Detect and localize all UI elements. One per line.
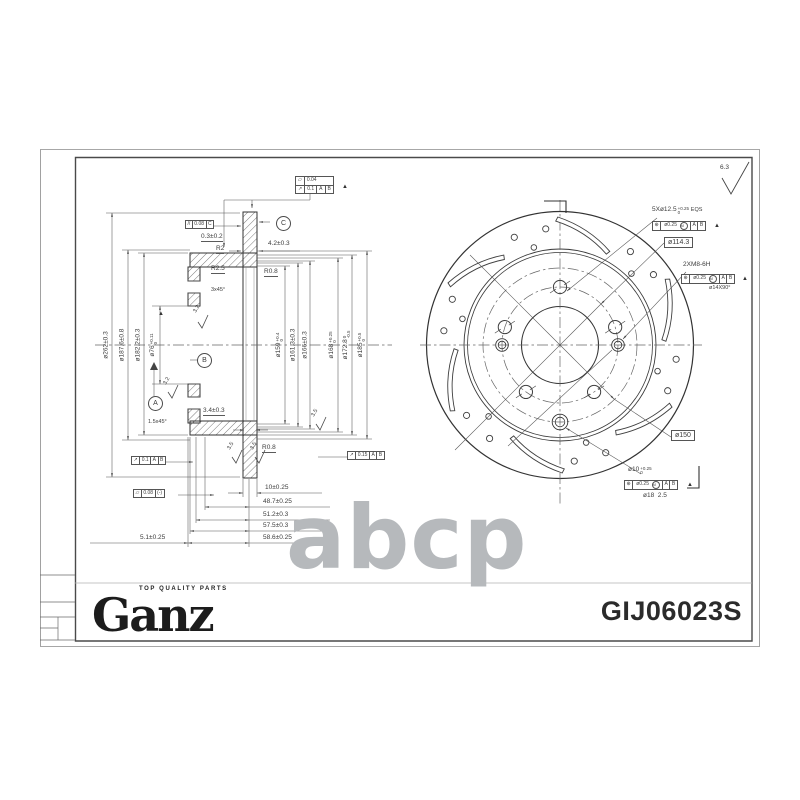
datum-balloon-b: B: [197, 353, 212, 368]
chain-dim-3: 51.2±0.3: [263, 511, 288, 518]
parallelism-value: 0.08: [192, 221, 206, 228]
datum-ref-a: A: [690, 222, 697, 230]
brand-logo: Ganz: [92, 592, 213, 638]
datum-ref-a: A: [719, 275, 726, 283]
dia-166: ø166±0.3: [302, 331, 309, 358]
datum-balloon-a: A: [148, 396, 163, 411]
dia-185: ø185+0.50: [357, 333, 367, 358]
datum-ref-a: A: [662, 481, 669, 489]
dia-168: ø168+0.250: [328, 331, 338, 358]
datum-ref-b: B: [697, 222, 704, 230]
runout-left-value: 0.1: [139, 457, 150, 464]
drawing-sheet: ▱0.04 ↗0.1AB ▲ //0.08C C B A 0.3±0.2 R2 …: [0, 0, 800, 800]
mmc-icon: M: [709, 275, 717, 283]
pin-hole-label: ø10+0.250: [628, 466, 652, 476]
eqs-note: EQS: [691, 207, 703, 213]
fcf-parallelism: //0.08C: [185, 220, 214, 229]
fcf-flatness-runout: ▱0.04 ↗0.1AB: [295, 176, 334, 194]
watermark: abcp: [286, 494, 528, 582]
datum-target-icon: ▲: [687, 482, 693, 488]
dia-172: ø172.80-0.5: [342, 330, 352, 359]
runout-right-value: 0.15: [355, 452, 369, 459]
countersink-label: ø14X90°: [709, 285, 730, 291]
chain-dim-left: 5.1±0.25: [140, 534, 165, 541]
datum-ref-b: B: [669, 481, 676, 489]
fcf-runout-left: ↗0.1AB: [131, 456, 166, 465]
brand-tagline: TOP QUALITY PARTS: [139, 586, 228, 592]
runout-icon: ↗: [132, 457, 139, 464]
datum-ref-a: A: [369, 452, 376, 459]
fcf-pin-hole: ⊕ø0.25MAB: [624, 480, 678, 490]
pcd-label: ø114.3: [664, 237, 693, 248]
datum-target-icon: ▲: [342, 184, 348, 190]
flatness-icon: ▱: [296, 177, 304, 185]
general-roughness-value: 6.3: [720, 164, 729, 171]
fcf-bolt-holes: ⊕ø0.25MAB: [652, 221, 706, 231]
circle-150-label: ø150: [671, 430, 695, 441]
datum-target-icon: ▲: [714, 223, 720, 229]
flatness-bottom-value: 0.08: [141, 490, 155, 497]
datum-ref-a: A: [150, 457, 157, 464]
chain-dim-4: 57.5±0.3: [263, 522, 288, 529]
dia-182: ø182.2±0.3: [135, 329, 142, 362]
mmc-icon: M: [652, 481, 660, 489]
position-icon: ⊕: [653, 222, 660, 230]
datum-ref-c: C: [206, 221, 214, 228]
datum-ref-a: A: [316, 186, 324, 194]
runout-icon: ↗: [296, 186, 304, 194]
dia-159: ø159+0.40: [275, 333, 285, 358]
runout-icon: ↗: [348, 452, 355, 459]
flatness-bottom-note: (-): [155, 490, 164, 497]
datum-ref-b: B: [325, 186, 333, 194]
chain-dim-1: 10±0.25: [265, 484, 288, 491]
bolt-holes-label: 5Xø12.5+0.250 EQS: [652, 206, 702, 216]
dim-r08-top: R0.8: [264, 268, 278, 277]
fcf-flatness-bottom: ▱0.08(-): [133, 489, 165, 498]
datum-balloon-c: C: [276, 216, 291, 231]
datum-ref-b: B: [158, 457, 165, 464]
position-icon: ⊕: [682, 275, 689, 283]
datum-target-icon: ▲: [158, 311, 164, 317]
dim-hat-thickness: 3.4±0.3: [203, 407, 225, 416]
pin-pos-tol: ø0.25M: [632, 481, 662, 489]
pin-note: ø18 2.5: [643, 492, 667, 499]
dim-offset: 0.3±0.2: [201, 233, 223, 242]
part-number: GIJ06023S: [574, 596, 742, 627]
bolt-holes-pos-tol: ø0.25M: [660, 222, 690, 230]
mmc-icon: M: [680, 222, 688, 230]
dia-262: ø262±0.3: [103, 331, 110, 358]
datum-ref-b: B: [376, 452, 383, 459]
dim-r25: R2.5: [211, 265, 225, 274]
dim-chamfer-bottom: 1.5x45°: [148, 419, 167, 425]
position-icon: ⊕: [625, 481, 632, 489]
datum-ref-b: B: [726, 275, 733, 283]
fcf-thread: ⊕ø0.25MAB: [681, 274, 735, 284]
drawing-linework: [0, 0, 800, 800]
runout-value: 0.1: [304, 186, 316, 194]
flatness-value: 0.04: [304, 177, 319, 185]
fcf-runout-right: ↗0.15AB: [347, 451, 385, 460]
dia-76: ø76+0.110: [149, 333, 159, 356]
dim-disc-thickness: 4.2±0.3: [268, 240, 290, 247]
dim-r2: R2: [216, 245, 224, 254]
thread-pos-tol: ø0.25M: [689, 275, 719, 283]
dim-r08-bottom: R0.8: [262, 444, 276, 453]
flatness-icon: ▱: [134, 490, 141, 497]
dia-187: ø187.6±0.8: [119, 329, 126, 362]
datum-target-icon: ▲: [742, 276, 748, 282]
dim-chamfer-top: 3x45°: [211, 287, 225, 293]
dia-161: ø161.3±0.3: [290, 329, 297, 362]
thread-label: 2XM8-6H: [683, 261, 710, 268]
